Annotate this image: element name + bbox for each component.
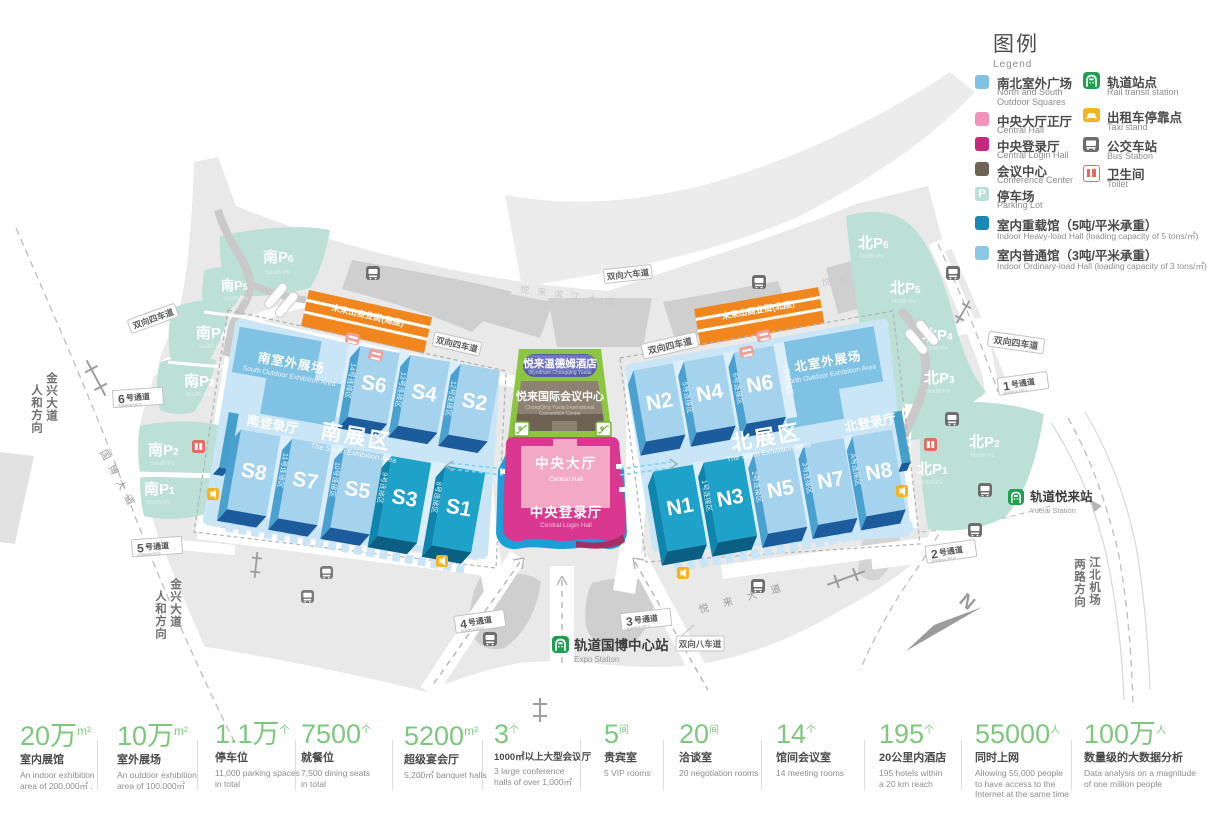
svg-text:S8: S8 xyxy=(239,458,269,485)
svg-text:Central Login Hall: Central Login Hall xyxy=(540,522,592,529)
svg-text:人和方向: 人和方向 xyxy=(155,589,167,641)
svg-text:North P2: North P2 xyxy=(971,453,995,459)
svg-text:号通道: 号通道 xyxy=(126,391,151,403)
svg-text:金兴大道: 金兴大道 xyxy=(45,371,58,423)
svg-text:N6: N6 xyxy=(745,371,775,398)
svg-text:South P6: South P6 xyxy=(265,270,290,276)
svg-text:两路方向: 两路方向 xyxy=(1074,558,1086,609)
svg-text:South P5: South P5 xyxy=(223,296,248,302)
svg-text:双向八车道: 双向八车道 xyxy=(679,639,722,649)
svg-text:Convention Center: Convention Center xyxy=(539,411,581,417)
svg-text:S1: S1 xyxy=(444,494,474,521)
svg-text:金兴大道: 金兴大道 xyxy=(169,577,182,629)
svg-text:N4: N4 xyxy=(694,379,725,406)
svg-text:Yuelai Station: Yuelai Station xyxy=(1030,506,1076,515)
svg-text:N3: N3 xyxy=(715,485,745,512)
svg-text:人和方向: 人和方向 xyxy=(31,383,43,435)
svg-text:North P3: North P3 xyxy=(926,389,950,395)
svg-text:轨道国博中心站: 轨道国博中心站 xyxy=(574,637,669,653)
svg-text:North P1: North P1 xyxy=(919,480,943,486)
svg-text:S4: S4 xyxy=(409,380,439,407)
svg-text:N8: N8 xyxy=(864,458,895,485)
svg-text:South P2: South P2 xyxy=(150,461,175,467)
svg-text:N1: N1 xyxy=(665,493,696,520)
svg-text:N2: N2 xyxy=(644,388,674,415)
svg-text:S6: S6 xyxy=(359,371,388,398)
svg-text:South P3: South P3 xyxy=(186,392,211,398)
svg-text:号通道: 号通道 xyxy=(145,540,170,552)
svg-text:中央登录厅: 中央登录厅 xyxy=(530,504,603,520)
svg-text:N5: N5 xyxy=(765,476,796,503)
svg-text:悦来国际会议中心: 悦来国际会议中心 xyxy=(516,389,604,403)
svg-text:South P4: South P4 xyxy=(198,344,223,350)
svg-text:轨道悦来站: 轨道悦来站 xyxy=(1030,489,1093,504)
svg-text:中央大厅: 中央大厅 xyxy=(535,455,597,471)
svg-text:N7: N7 xyxy=(815,467,845,494)
svg-text:S5: S5 xyxy=(343,477,373,504)
svg-text:S2: S2 xyxy=(460,389,489,416)
svg-text:South P1: South P1 xyxy=(146,500,171,506)
svg-text:Entrance NO.6: Entrance NO.6 xyxy=(118,402,141,408)
svg-text:江北机场: 江北机场 xyxy=(1089,555,1101,607)
svg-text:Wyndham Chongqing Yuelai: Wyndham Chongqing Yuelai xyxy=(529,370,592,376)
svg-text:Expo Station: Expo Station xyxy=(574,655,619,664)
svg-text:悦来温德姆酒店: 悦来温德姆酒店 xyxy=(523,357,597,370)
svg-text:Central Hall: Central Hall xyxy=(549,476,584,483)
svg-text:S7: S7 xyxy=(290,467,319,494)
svg-text:North P6: North P6 xyxy=(860,254,884,260)
svg-text:North P5: North P5 xyxy=(892,299,916,305)
svg-text:S3: S3 xyxy=(390,485,419,512)
